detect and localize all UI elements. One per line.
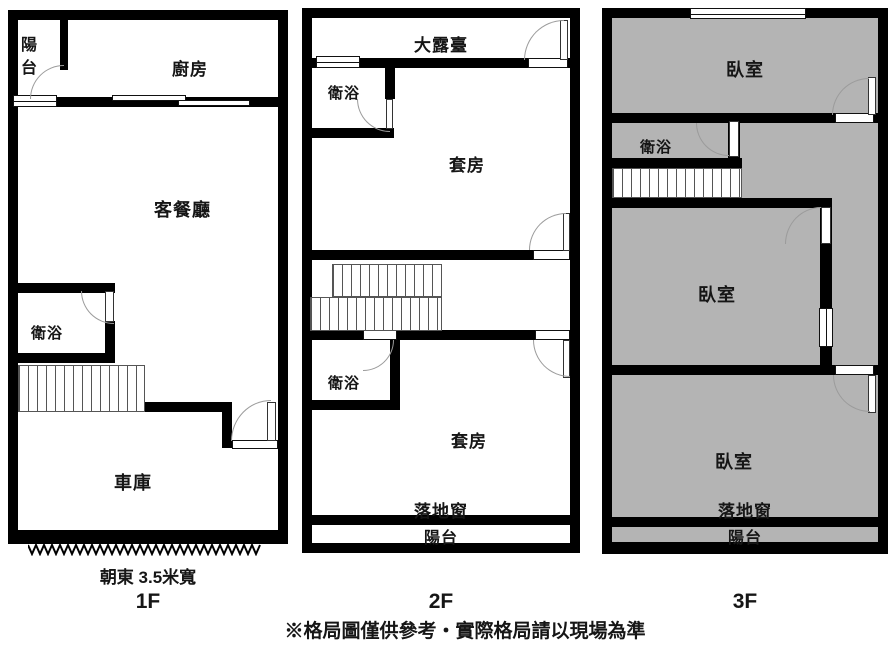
wall	[570, 8, 580, 553]
floor-plan-1f: 陽台 廚房 客餐廳 衛浴 車庫	[8, 10, 288, 557]
wall	[105, 321, 115, 355]
door-leaf	[729, 121, 739, 157]
door-arc	[785, 207, 821, 244]
room-label-bathroom-upper: 衛浴	[328, 82, 360, 103]
room-label-suite-lower: 套房	[451, 427, 487, 452]
orientation-note: 朝東 3.5米寬	[8, 563, 288, 588]
wall	[8, 530, 288, 544]
room-label-garage: 車庫	[114, 469, 152, 495]
room-label-bedroom-top: 臥室	[726, 56, 764, 82]
door-arc	[529, 213, 566, 250]
wall	[602, 158, 742, 168]
wall	[302, 400, 400, 410]
room-label-balcony: 陽台	[602, 524, 888, 548]
window-symbol	[690, 8, 806, 19]
door-threshold	[232, 440, 278, 449]
wall	[302, 250, 533, 260]
wall	[8, 10, 288, 20]
door-arc	[81, 291, 114, 324]
wall	[602, 8, 612, 554]
floor-label-1f: 1F	[8, 590, 288, 614]
room-label-bedroom-bottom: 臥室	[715, 448, 753, 474]
wall	[222, 412, 232, 448]
french-window-label: 落地窗	[602, 497, 888, 522]
floorplan-canvas: 陽台 廚房 客餐廳 衛浴 車庫	[0, 0, 889, 648]
wall	[602, 198, 832, 208]
stairs	[612, 168, 742, 198]
wall	[60, 10, 68, 70]
room-label-kitchen: 廚房	[172, 55, 208, 80]
wall	[302, 8, 580, 18]
door-threshold	[363, 330, 397, 340]
door-arc	[833, 375, 870, 412]
garage-shutter	[28, 544, 264, 556]
stairs	[332, 264, 442, 297]
disclaimer-text: ※格局圖僅供參考‧實際格局請以現場為準	[230, 616, 700, 643]
door-threshold	[835, 365, 874, 375]
floor-label-3f: 3F	[602, 590, 888, 614]
wall	[8, 353, 115, 363]
door-arc	[696, 123, 729, 156]
room-label-bathroom: 衛浴	[31, 322, 63, 343]
stairs	[18, 365, 145, 412]
wall	[385, 58, 395, 99]
door-arc	[231, 400, 271, 441]
wall	[302, 330, 535, 340]
wall	[8, 10, 18, 544]
room-label-terrace: 大露臺	[414, 31, 468, 56]
door-leaf	[868, 77, 876, 115]
floor-label-2f: 2F	[302, 590, 580, 614]
wall	[278, 10, 288, 544]
door-arc	[524, 20, 564, 60]
door-threshold	[533, 250, 570, 260]
room-label-bathroom-lower: 衛浴	[328, 372, 360, 393]
door-threshold	[535, 330, 570, 340]
window-symbol	[819, 308, 833, 347]
door-arc	[832, 78, 869, 115]
room-label-suite-upper: 套房	[449, 151, 485, 176]
window-symbol	[178, 100, 250, 106]
room-label-bathroom: 衛浴	[640, 136, 672, 157]
room-label-living-dining: 客餐廳	[154, 196, 211, 222]
room-label-balcony: 陽台	[302, 524, 580, 548]
wall	[878, 8, 888, 554]
wall	[302, 8, 312, 553]
floor-plan-2f: 大露臺 衛浴 套房 衛浴 套房 落地窗 陽台	[302, 8, 580, 553]
room-label-bedroom-middle: 臥室	[698, 281, 736, 307]
french-window-label: 落地窗	[302, 497, 580, 522]
window-symbol	[316, 56, 360, 68]
floor-plan-3f: 臥室 衛浴 臥室 臥室 落地窗 陽台	[602, 8, 888, 554]
stairs	[310, 297, 442, 331]
door-leaf	[821, 207, 831, 244]
door-arc	[533, 340, 570, 377]
room-label-balcony: 陽台	[21, 34, 40, 80]
window-symbol	[112, 95, 186, 101]
